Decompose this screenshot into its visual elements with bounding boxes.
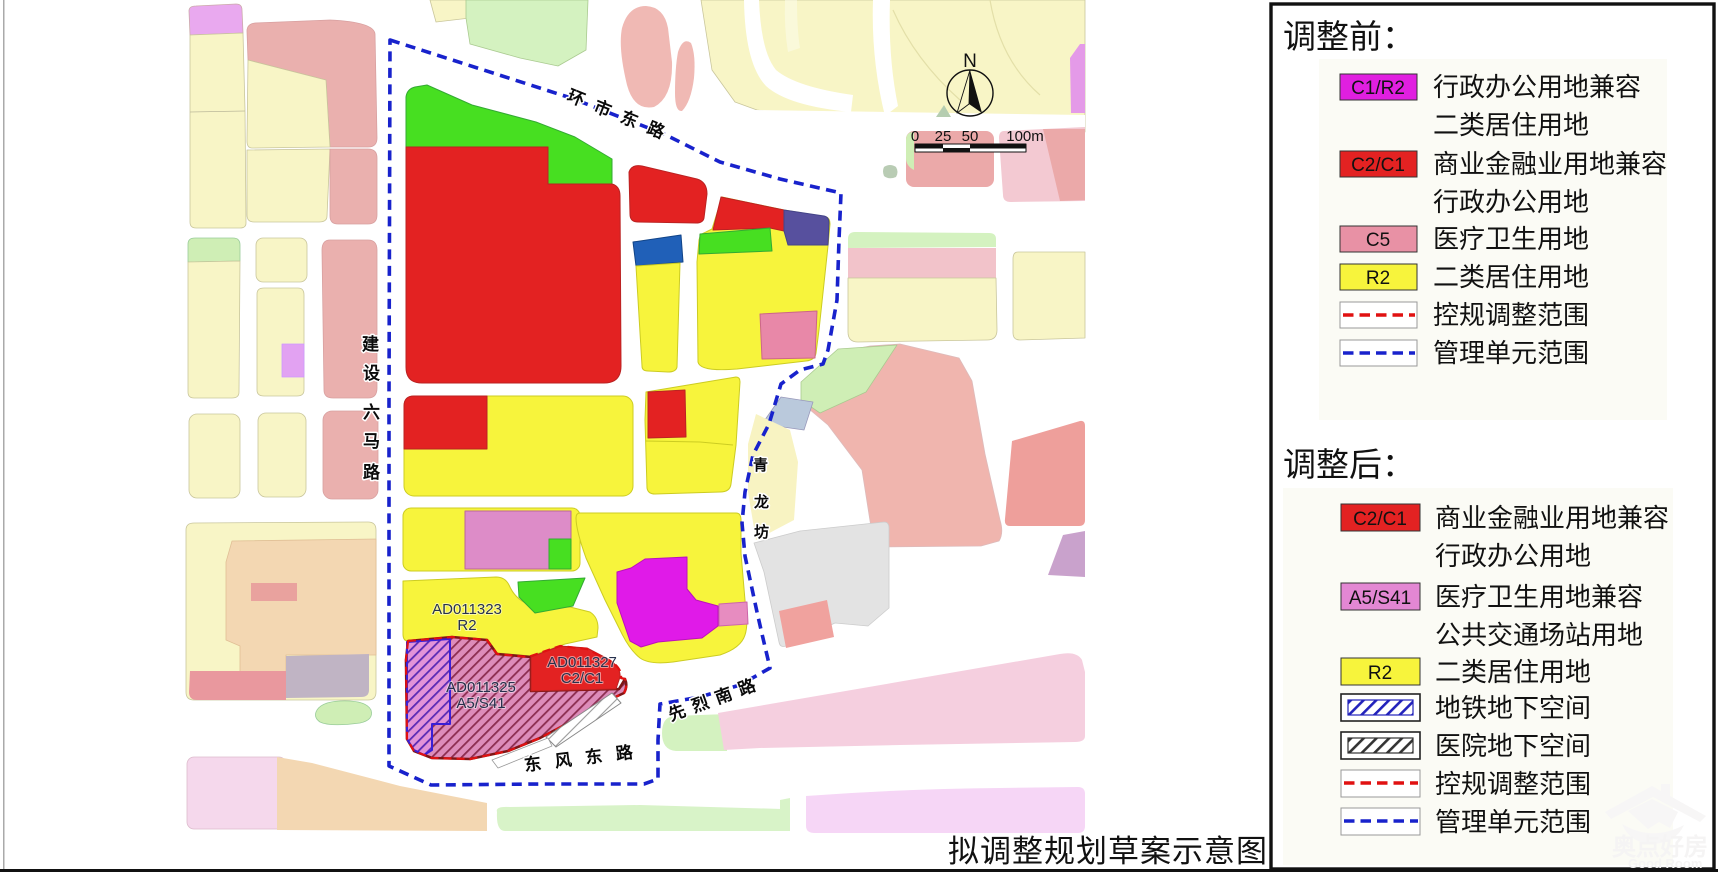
svg-text:马: 马 bbox=[363, 432, 380, 451]
svg-text:行政办公用地: 行政办公用地 bbox=[1435, 541, 1591, 571]
svg-text:医院地下空间: 医院地下空间 bbox=[1435, 731, 1591, 761]
svg-text:调整后：: 调整后： bbox=[1283, 446, 1415, 483]
svg-text:25: 25 bbox=[935, 128, 952, 145]
svg-text:商业金融业用地兼容: 商业金融业用地兼容 bbox=[1435, 503, 1669, 533]
svg-text:0: 0 bbox=[911, 128, 919, 145]
svg-text:A5/S41: A5/S41 bbox=[1349, 588, 1411, 609]
svg-text:N: N bbox=[963, 51, 977, 72]
svg-text:AD011327: AD011327 bbox=[547, 654, 617, 671]
svg-text:二类居住用地: 二类居住用地 bbox=[1433, 262, 1589, 292]
svg-text:建: 建 bbox=[362, 334, 379, 354]
svg-text:R2: R2 bbox=[457, 617, 476, 634]
svg-text:医疗卫生用地兼容: 医疗卫生用地兼容 bbox=[1435, 582, 1643, 612]
svg-text:C5: C5 bbox=[1366, 230, 1390, 251]
svg-text:龙: 龙 bbox=[753, 493, 769, 511]
svg-text:商业金融业用地兼容: 商业金融业用地兼容 bbox=[1433, 149, 1667, 179]
svg-text:医疗卫生用地: 医疗卫生用地 bbox=[1433, 224, 1589, 254]
svg-text:50: 50 bbox=[962, 128, 979, 145]
svg-text:设: 设 bbox=[363, 364, 380, 383]
svg-text:100m: 100m bbox=[1006, 128, 1044, 145]
svg-text:AD011323: AD011323 bbox=[432, 601, 502, 618]
svg-text:行政办公用地兼容: 行政办公用地兼容 bbox=[1433, 72, 1641, 102]
svg-text:A5/S41: A5/S41 bbox=[456, 695, 505, 712]
svg-text:控规调整范围: 控规调整范围 bbox=[1435, 769, 1591, 799]
svg-text:地铁地下空间: 地铁地下空间 bbox=[1435, 693, 1591, 723]
svg-text:二类居住用地: 二类居住用地 bbox=[1435, 657, 1591, 687]
svg-text:C2/C1: C2/C1 bbox=[1351, 155, 1405, 176]
svg-text:青: 青 bbox=[753, 456, 768, 474]
svg-text:路: 路 bbox=[363, 462, 381, 482]
svg-text:管理单元范围: 管理单元范围 bbox=[1433, 338, 1589, 368]
svg-text:公共交通场站用地: 公共交通场站用地 bbox=[1435, 620, 1643, 650]
svg-text:管理单元范围: 管理单元范围 bbox=[1435, 807, 1591, 837]
svg-text:控规调整范围: 控规调整范围 bbox=[1433, 300, 1589, 330]
svg-text:C1/R2: C1/R2 bbox=[1351, 78, 1405, 99]
svg-text:R2: R2 bbox=[1368, 663, 1392, 684]
svg-text:六: 六 bbox=[363, 402, 380, 422]
svg-text:AD011325: AD011325 bbox=[446, 679, 516, 696]
svg-text:Good Room: Good Room bbox=[1628, 856, 1702, 871]
svg-text:R2: R2 bbox=[1366, 268, 1390, 289]
svg-text:行政办公用地: 行政办公用地 bbox=[1433, 187, 1589, 217]
svg-text:二类居住用地: 二类居住用地 bbox=[1433, 110, 1589, 140]
svg-text:拟调整规划草案示意图: 拟调整规划草案示意图 bbox=[948, 834, 1268, 869]
svg-text:坊: 坊 bbox=[754, 523, 769, 541]
svg-text:调整前：: 调整前： bbox=[1283, 18, 1415, 55]
svg-text:C2/C1: C2/C1 bbox=[1353, 509, 1407, 530]
svg-text:C2/C1: C2/C1 bbox=[561, 670, 604, 687]
